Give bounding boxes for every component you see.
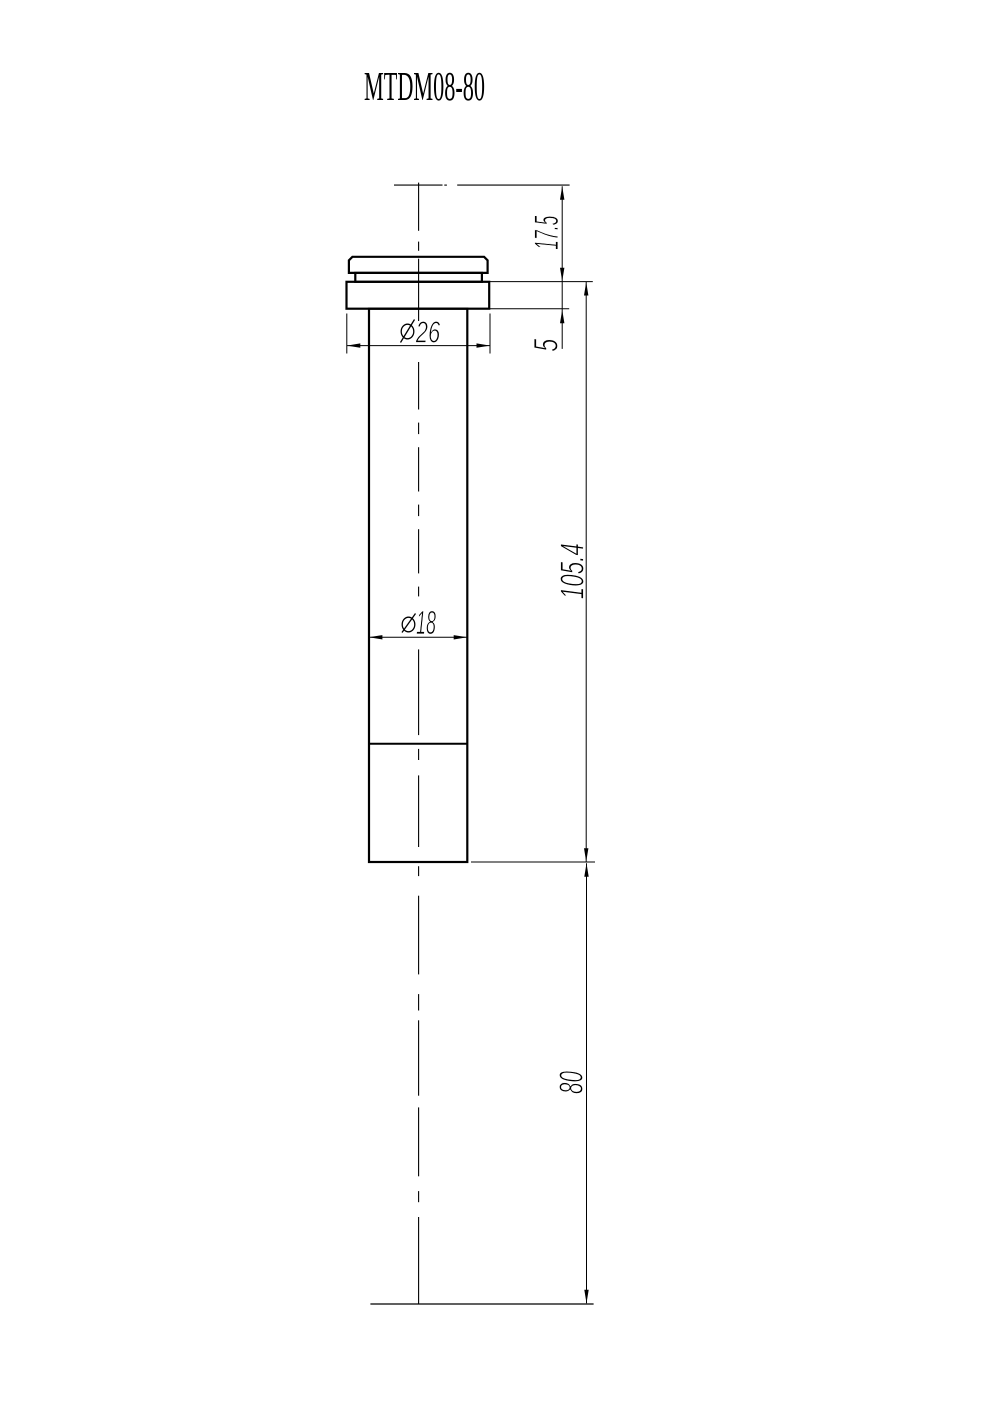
svg-text:26: 26 <box>415 314 441 349</box>
svg-text:5: 5 <box>528 339 566 352</box>
svg-text:18: 18 <box>416 604 436 641</box>
svg-text:80: 80 <box>553 1071 590 1094</box>
svg-text:17.5: 17.5 <box>528 216 566 250</box>
svg-text:105.4: 105.4 <box>554 543 591 599</box>
svg-text:MTDM08-80: MTDM08-80 <box>364 63 485 109</box>
